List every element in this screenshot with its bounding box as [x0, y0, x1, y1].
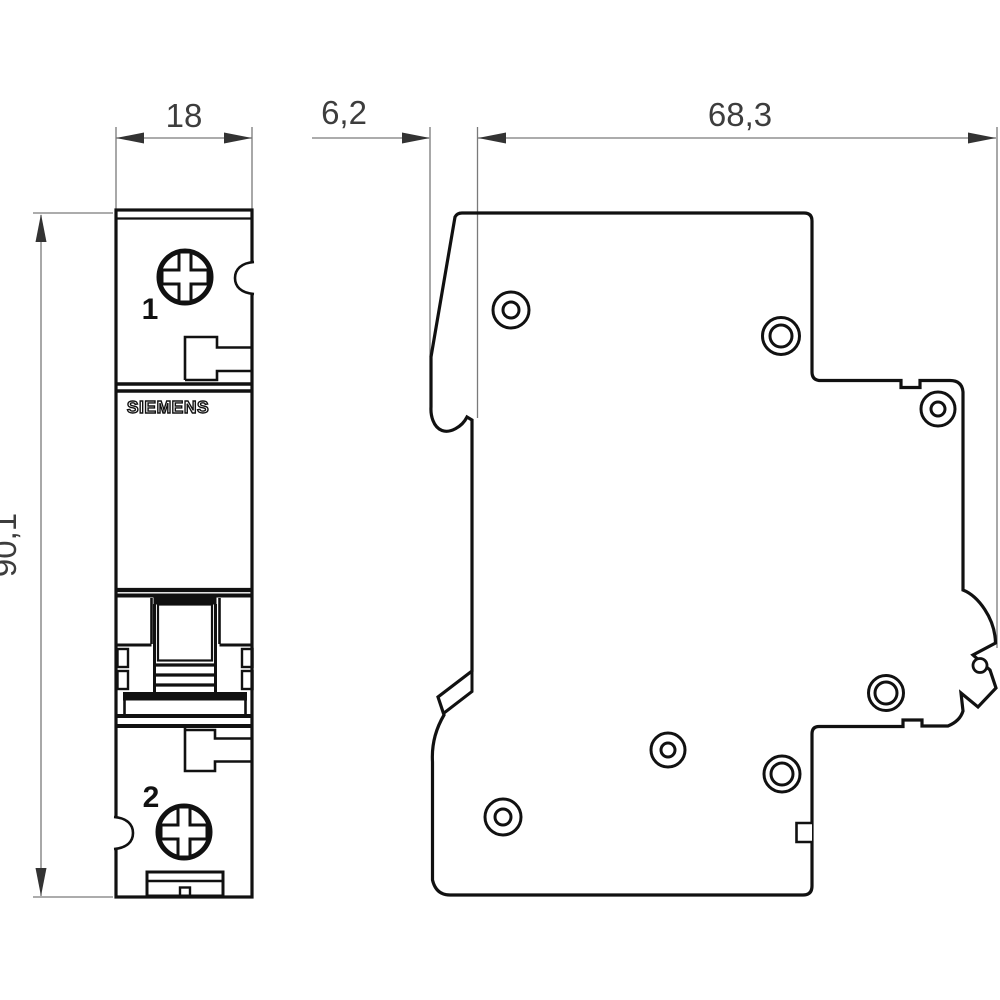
- dim-label-depth: 68,3: [708, 96, 772, 133]
- dim-label-height: 90,1: [0, 513, 23, 577]
- rivet-top-left: [493, 292, 529, 328]
- bottom-foot: [147, 872, 223, 896]
- dimension-arrowheads: [36, 133, 997, 897]
- arrow-6-2: [402, 133, 430, 144]
- arrow-90-1-top: [36, 214, 47, 242]
- rivet-bottom-left: [485, 799, 521, 835]
- front-body-outline: [116, 210, 252, 897]
- toggle-switch-area: [116, 596, 253, 727]
- lever-face: [158, 605, 212, 661]
- technical-drawing-canvas: 18 6,2 68,3 90,1 1 SIEMENS: [0, 0, 1000, 1000]
- terminal-1-label: 1: [142, 293, 159, 326]
- arrow-18-right: [224, 133, 252, 144]
- terminal-1-cover: [185, 337, 252, 380]
- toggle-lever: [154, 598, 217, 694]
- rear-step-tab: [797, 823, 813, 842]
- housing-rivets: [485, 292, 955, 835]
- front-view: 1 SIEMENS: [114, 210, 254, 897]
- rivet-right-lower: [869, 676, 904, 711]
- latch-pin-circle: [973, 659, 987, 673]
- dimension-lines: [33, 127, 997, 897]
- rivet-top-right: [763, 318, 800, 355]
- foot-outline: [147, 872, 223, 896]
- left-edge-notch: [114, 817, 133, 849]
- clip-left-lower: [118, 671, 129, 689]
- arrow-68-3-right: [968, 133, 996, 144]
- right-edge-notch: [235, 262, 254, 294]
- terminal-2-cover: [185, 728, 252, 771]
- screw-terminal-2: [158, 806, 210, 858]
- dimension-drawing: 18 6,2 68,3 90,1 1 SIEMENS: [0, 0, 1000, 1000]
- arrow-68-3-left: [478, 133, 506, 144]
- arrow-18-left: [116, 133, 144, 144]
- rivet-bottom-right: [764, 756, 800, 792]
- screw-terminal-1: [159, 251, 211, 303]
- dim-label-rail-offset: 6,2: [321, 94, 367, 131]
- switch-cross-bar: [123, 692, 247, 701]
- dim-label-width: 18: [166, 97, 203, 134]
- side-clips: [118, 649, 253, 689]
- arrow-90-1-bottom: [36, 868, 47, 896]
- snap-flag-inner-edge: [444, 670, 472, 713]
- side-view: [431, 213, 996, 895]
- clip-left-upper: [118, 649, 129, 667]
- brand-text: SIEMENS: [127, 397, 209, 417]
- rivet-right-upper: [921, 392, 955, 426]
- rivet-bottom-center: [651, 733, 685, 767]
- terminal-2-label: 2: [143, 781, 160, 814]
